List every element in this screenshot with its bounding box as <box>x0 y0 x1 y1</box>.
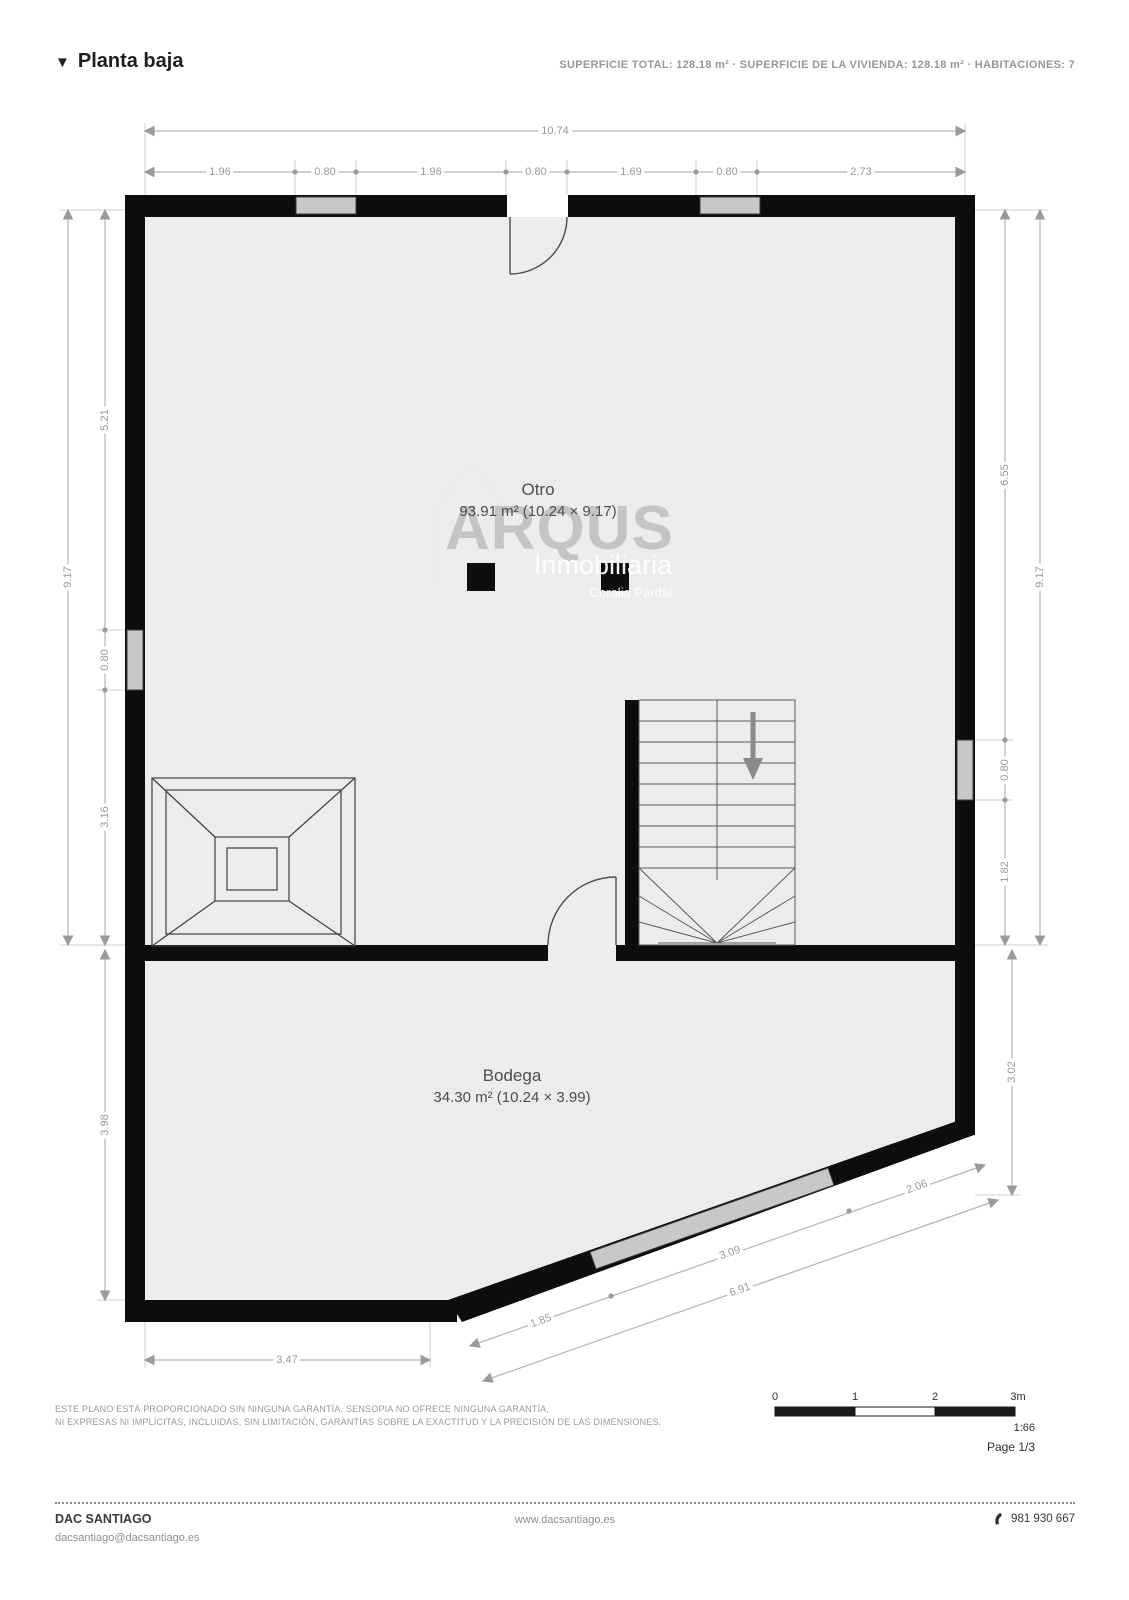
dimension-label: 9.17 <box>62 563 74 590</box>
room-name: Otro <box>459 480 616 500</box>
scale-ratio: 1:66 <box>1014 1422 1035 1434</box>
disclaimer-line: NI EXPRESAS NI IMPLÍCITAS, INCLUIDAS, SI… <box>55 1417 661 1427</box>
floor-area <box>145 217 955 1300</box>
scale-tick: 3m <box>1010 1391 1025 1403</box>
dimension-label: 1.96 <box>417 166 444 178</box>
dimension-label: 1.82 <box>999 858 1011 885</box>
dimension-label: 0.80 <box>999 756 1011 783</box>
dimension-label: 5.21 <box>99 406 111 433</box>
page-number: Page 1/3 <box>987 1440 1035 1454</box>
footer-email: dacsantiago@dacsantiago.es <box>55 1532 200 1544</box>
dimension-label: 0.80 <box>311 166 338 178</box>
room-area: 93.91 m² (10.24 × 9.17) <box>459 503 616 520</box>
room-label-otro: Otro 93.91 m² (10.24 × 9.17) <box>459 480 616 520</box>
dimension-label: 2.73 <box>847 166 874 178</box>
footer-phone-number: 981 930 667 <box>1011 1513 1075 1525</box>
room-area: 34.30 m² (10.24 × 3.99) <box>433 1089 590 1106</box>
scale-tick: 1 <box>852 1391 858 1403</box>
dimension-label: 9.17 <box>1034 563 1046 590</box>
room-name: Bodega <box>433 1066 590 1086</box>
dimension-label: 0.80 <box>713 166 740 178</box>
footer-company: DAC SANTIAGO <box>55 1512 152 1526</box>
disclaimer-line: ESTE PLANO ESTÁ PROPORCIONADO SIN NINGUN… <box>55 1404 549 1414</box>
floor-plan-svg <box>0 0 1129 1600</box>
dimension-label: 3.16 <box>99 803 111 830</box>
footer-divider <box>55 1502 1075 1504</box>
scale-bar <box>775 1407 1015 1416</box>
dimension-label: 3.98 <box>99 1111 111 1138</box>
dimension-label: 1.96 <box>206 166 233 178</box>
room-label-bodega: Bodega 34.30 m² (10.24 × 3.99) <box>433 1066 590 1106</box>
dimension-label: 3.02 <box>1006 1058 1018 1085</box>
dimension-label: 0.80 <box>99 646 111 673</box>
dimension-label: 10.74 <box>538 125 572 137</box>
dimension-label: 1.69 <box>617 166 644 178</box>
footer-phone: 981 930 667 <box>991 1512 1075 1525</box>
footer-website: www.dacsantiago.es <box>515 1514 615 1526</box>
floor-plan-page: ▼Planta baja SUPERFICIE TOTAL: 128.18 m²… <box>0 0 1129 1600</box>
phone-icon <box>991 1512 1004 1525</box>
scale-tick: 2 <box>932 1391 938 1403</box>
dimension-label: 6.55 <box>999 461 1011 488</box>
dimension-label: 3.47 <box>273 1354 300 1366</box>
dimension-label: 0.80 <box>522 166 549 178</box>
scale-tick: 0 <box>772 1391 778 1403</box>
